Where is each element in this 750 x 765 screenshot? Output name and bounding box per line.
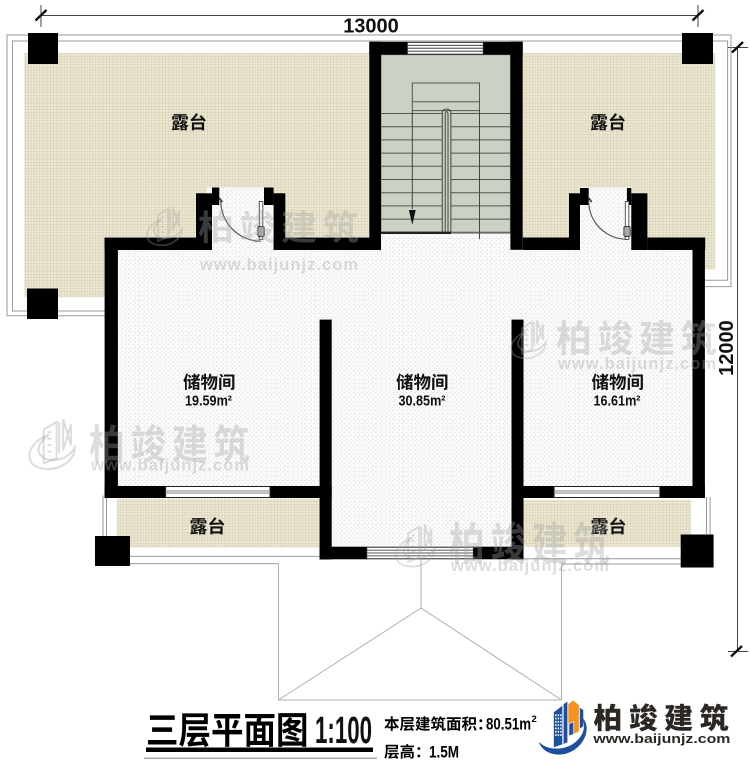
- svg-text:www.baijunjz.com: www.baijunjz.com: [592, 731, 730, 746]
- svg-text:1:100: 1:100: [315, 710, 372, 752]
- svg-text:13000: 13000: [343, 16, 399, 38]
- svg-text:1.5M: 1.5M: [429, 742, 459, 761]
- svg-text:2: 2: [532, 714, 537, 725]
- svg-text:80.51m: 80.51m: [486, 715, 531, 734]
- svg-text:www.baijunjz.com: www.baijunjz.com: [90, 457, 251, 475]
- svg-text:16.61m²: 16.61m²: [594, 394, 641, 410]
- svg-text:19.59m²: 19.59m²: [185, 394, 232, 410]
- svg-text:www.baijunjz.com: www.baijunjz.com: [199, 256, 360, 274]
- svg-text:12000: 12000: [716, 320, 738, 376]
- svg-text:www.baijunjz.com: www.baijunjz.com: [557, 355, 718, 373]
- svg-text:www.baijunjz.com: www.baijunjz.com: [450, 557, 611, 575]
- svg-text:30.85m²: 30.85m²: [399, 394, 446, 410]
